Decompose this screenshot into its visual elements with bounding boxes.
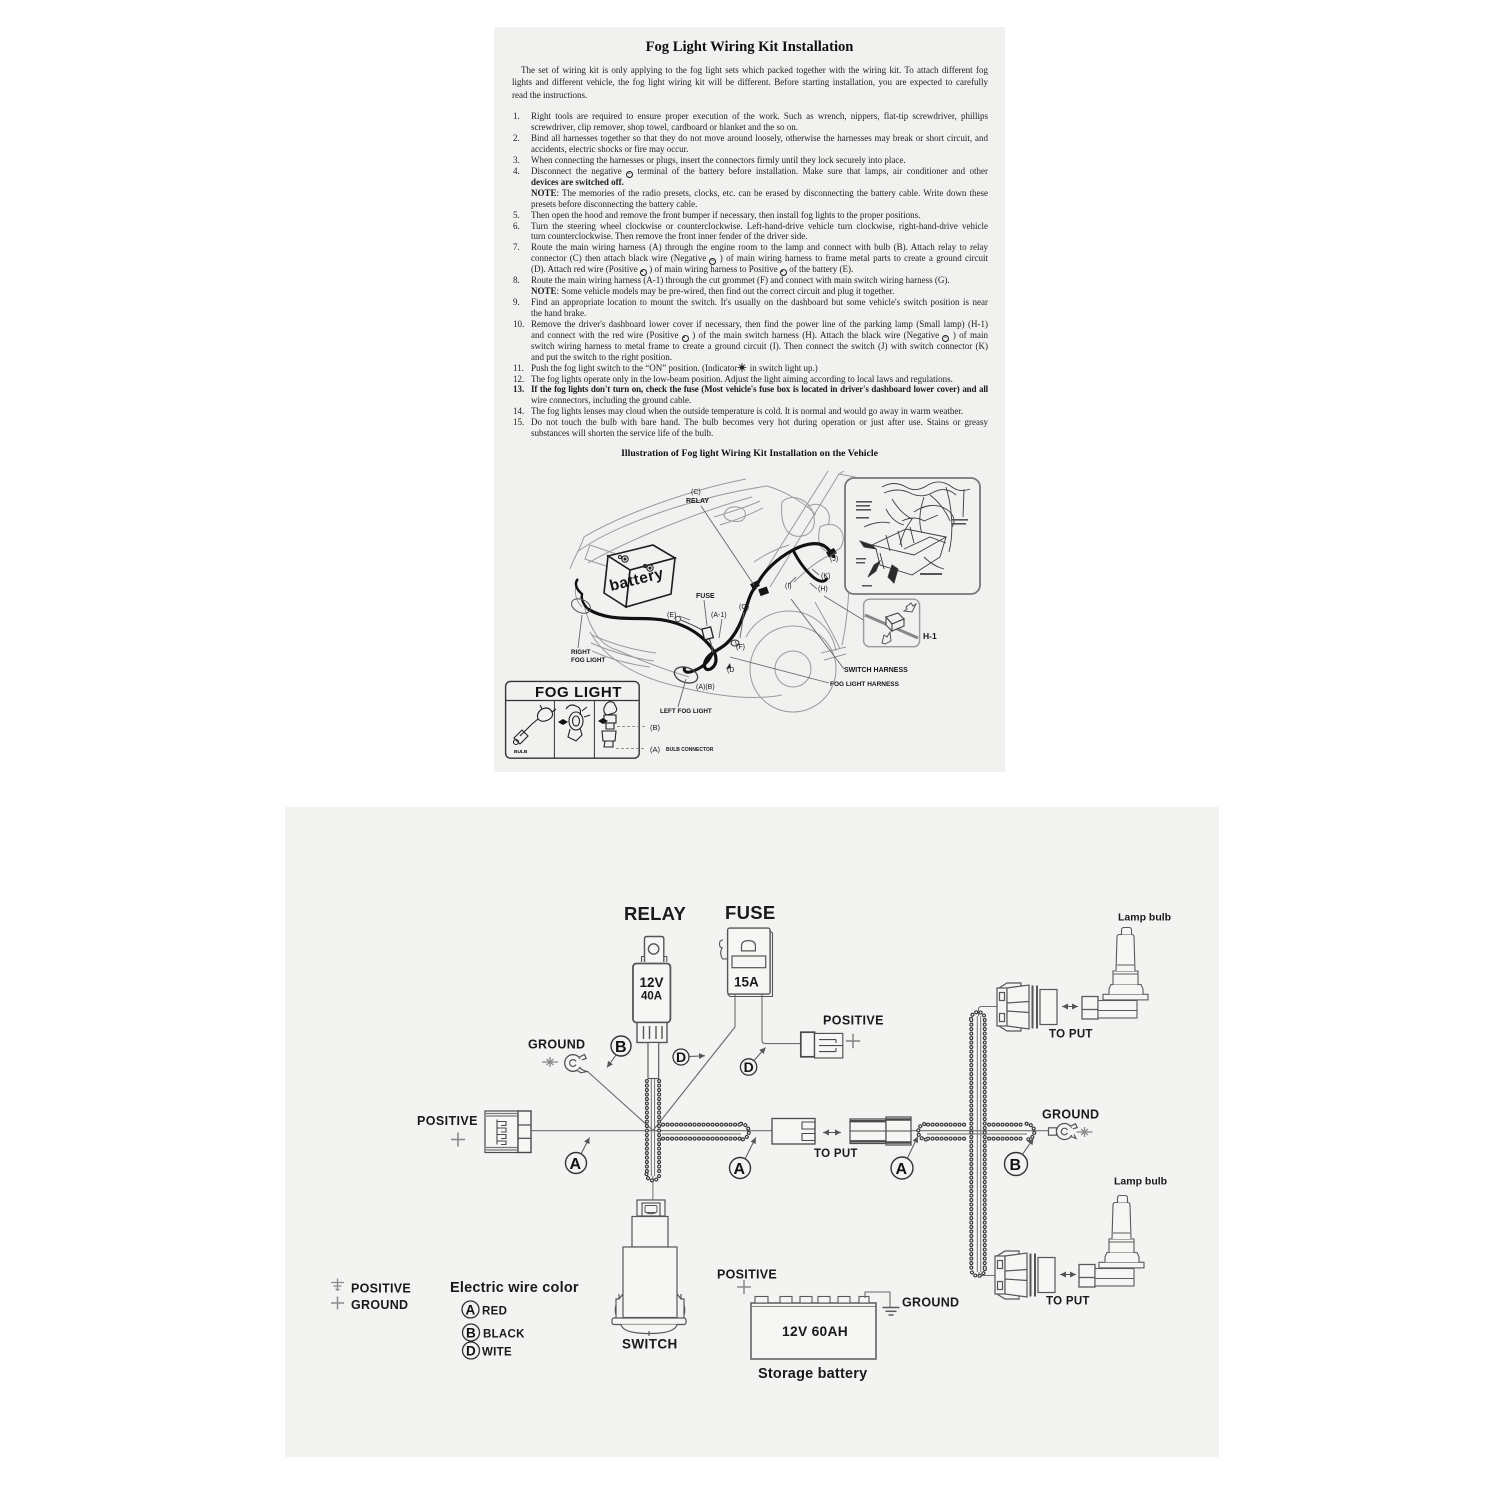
svg-text:A: A [734, 1161, 746, 1178]
svg-text:RED: RED [482, 1306, 507, 1318]
svg-text:FOG LIGHT: FOG LIGHT [571, 657, 605, 664]
svg-text:(A): (A) [650, 745, 661, 754]
svg-text:POSITIVE: POSITIVE [823, 1014, 884, 1028]
svg-text:Lamp bulb: Lamp bulb [1114, 1176, 1167, 1188]
svg-text:D: D [744, 1059, 754, 1075]
svg-text:(C): (C) [691, 489, 701, 496]
svg-text:(B): (B) [650, 723, 661, 732]
svg-text:GROUND: GROUND [1042, 1108, 1099, 1122]
svg-text:B: B [1010, 1157, 1022, 1174]
svg-text:POSITIVE: POSITIVE [717, 1268, 777, 1282]
svg-text:Lamp bulb: Lamp bulb [1118, 912, 1171, 924]
svg-text:(H): (H) [818, 586, 828, 593]
svg-text:A: A [896, 1161, 908, 1178]
svg-text:BULB CONNECTOR: BULB CONNECTOR [666, 747, 714, 753]
svg-text:WITE: WITE [482, 1347, 512, 1359]
svg-text:(G): (G) [739, 604, 749, 611]
svg-text:FUSE: FUSE [725, 902, 776, 923]
svg-text:Storage battery: Storage battery [758, 1366, 867, 1382]
svg-text:FOG LIGHT HARNESS: FOG LIGHT HARNESS [830, 681, 900, 688]
svg-text:A: A [570, 1156, 582, 1173]
svg-text:RIGHT: RIGHT [571, 649, 591, 656]
svg-text:BLACK: BLACK [483, 1329, 525, 1341]
svg-text:FUSE: FUSE [696, 593, 715, 600]
svg-text:(F): (F) [736, 644, 745, 651]
svg-text:TO PUT: TO PUT [1049, 1029, 1093, 1041]
svg-text:(D: (D [727, 667, 734, 674]
svg-text:(J): (J) [830, 556, 838, 563]
svg-text:RELAY: RELAY [686, 498, 709, 505]
svg-text:(K): (K) [821, 573, 830, 580]
svg-text:TO PUT: TO PUT [1046, 1296, 1090, 1308]
svg-text:15A: 15A [734, 975, 759, 990]
svg-text:B: B [615, 1039, 627, 1056]
svg-text:40A: 40A [641, 991, 662, 1003]
svg-text:D: D [676, 1049, 686, 1065]
svg-text:H-1: H-1 [923, 631, 937, 641]
svg-text:SWITCH: SWITCH [622, 1337, 678, 1352]
svg-text:(A)(B): (A)(B) [696, 684, 715, 691]
svg-text:(E): (E) [667, 612, 676, 619]
svg-text:A: A [466, 1303, 476, 1318]
svg-text:GROUND: GROUND [902, 1296, 959, 1310]
svg-text:POSITIVE: POSITIVE [351, 1282, 411, 1296]
svg-text:FOG LIGHT: FOG LIGHT [535, 684, 622, 701]
svg-text:D: D [466, 1344, 476, 1359]
svg-text:(A-1): (A-1) [711, 612, 727, 619]
svg-text:Electric wire color: Electric wire color [450, 1280, 579, 1296]
svg-text:BULB: BULB [514, 749, 528, 755]
svg-text:RELAY: RELAY [624, 903, 686, 924]
svg-text:GROUND: GROUND [528, 1038, 585, 1052]
svg-text:POSITIVE: POSITIVE [417, 1114, 478, 1128]
svg-text:SWITCH HARNESS: SWITCH HARNESS [844, 667, 908, 674]
svg-text:12V 60AH: 12V 60AH [782, 1324, 848, 1339]
svg-text:TO PUT: TO PUT [814, 1148, 858, 1160]
svg-text:B: B [466, 1326, 476, 1341]
svg-text:LEFT FOG LIGHT: LEFT FOG LIGHT [660, 708, 712, 715]
svg-text:GROUND: GROUND [351, 1298, 408, 1312]
svg-text:(I): (I) [785, 583, 792, 590]
svg-text:12V: 12V [640, 975, 664, 990]
